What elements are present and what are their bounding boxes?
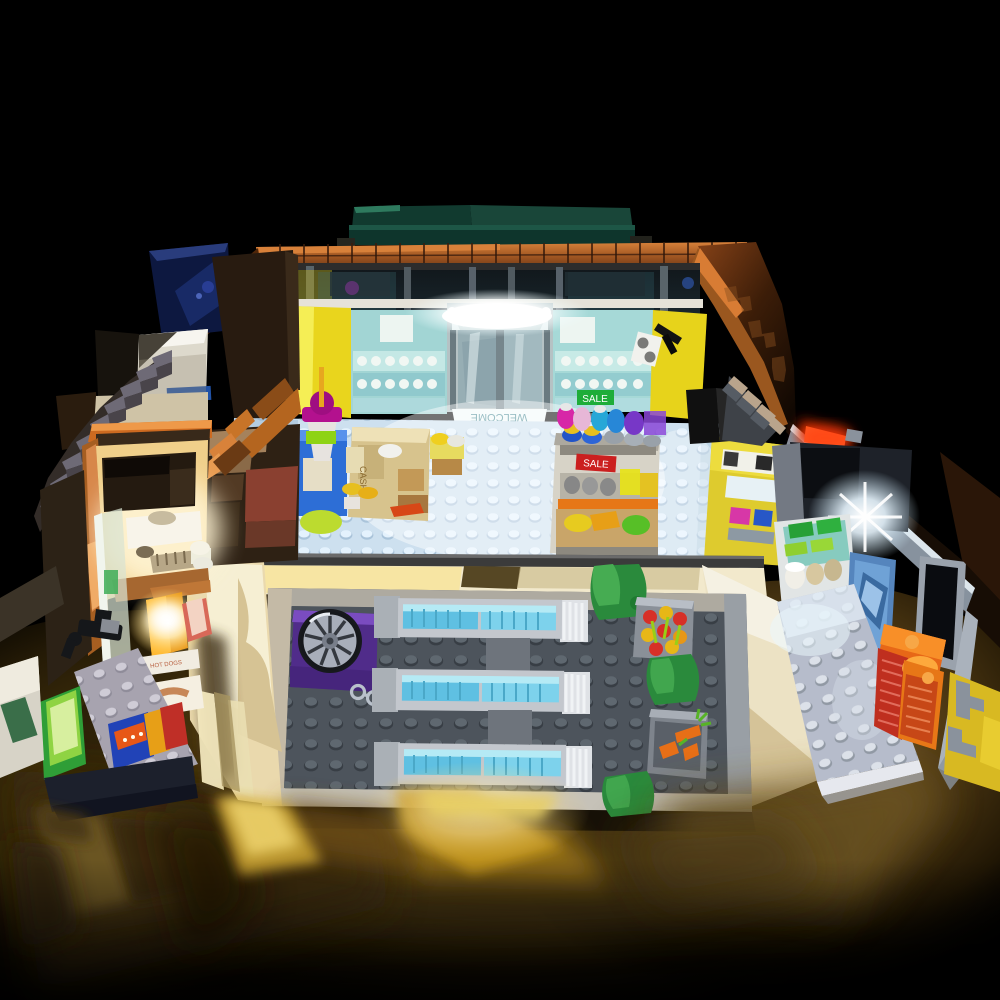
svg-text:SALE: SALE [583,458,610,471]
svg-text:SALE: SALE [582,394,608,405]
